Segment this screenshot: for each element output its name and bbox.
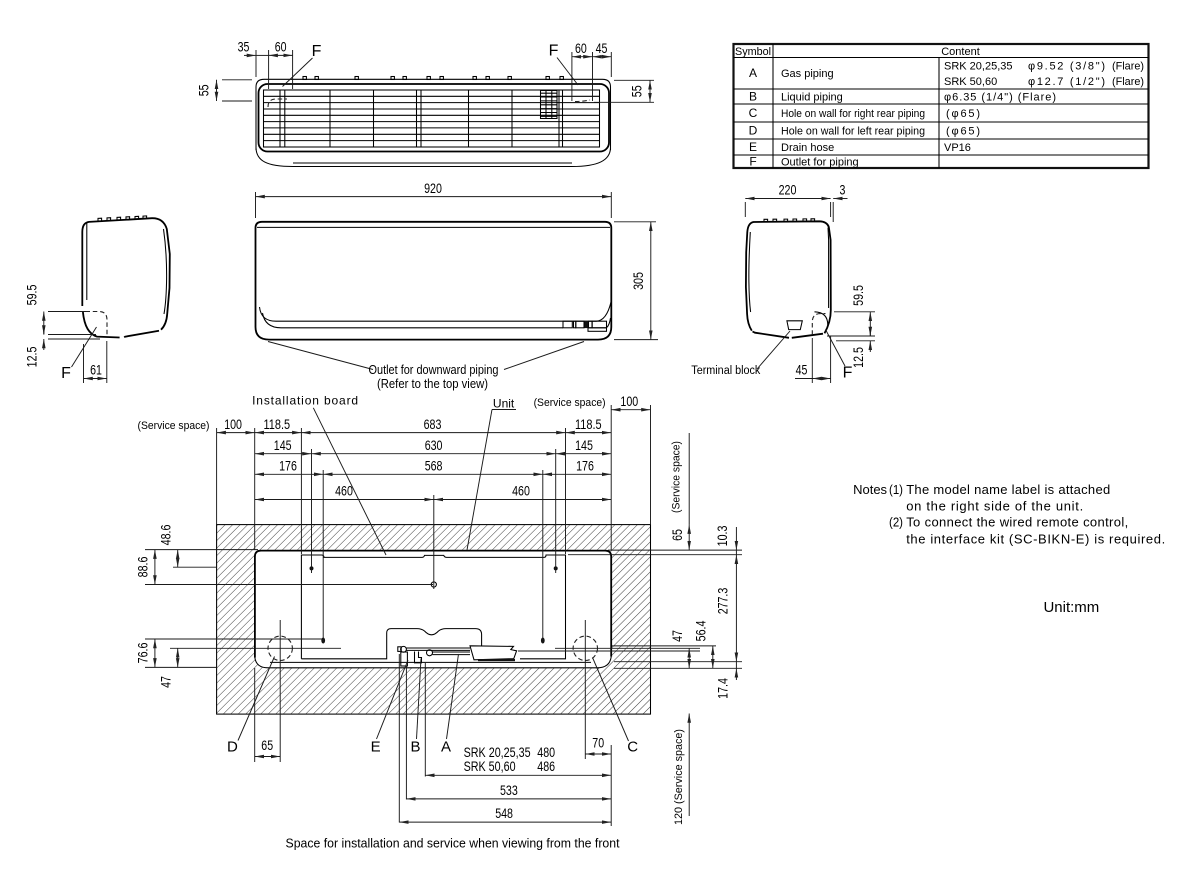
- svg-text:Notes: Notes: [853, 482, 887, 497]
- svg-text:145: 145: [274, 437, 292, 453]
- svg-text:Unit: Unit: [493, 396, 515, 410]
- svg-text:B: B: [410, 739, 420, 756]
- svg-text:56.4: 56.4: [693, 620, 709, 641]
- svg-text:3: 3: [840, 182, 846, 198]
- svg-text:Unit:mm: Unit:mm: [1043, 599, 1099, 616]
- svg-text:C: C: [627, 739, 638, 756]
- svg-text:55: 55: [196, 84, 212, 96]
- svg-text:55: 55: [629, 85, 645, 97]
- svg-text:F: F: [843, 365, 853, 382]
- svg-text:59.5: 59.5: [24, 284, 40, 305]
- svg-text:460: 460: [335, 483, 353, 499]
- svg-text:100: 100: [620, 393, 638, 409]
- svg-text:65: 65: [669, 529, 685, 541]
- svg-text:118.5: 118.5: [575, 416, 602, 432]
- svg-text:12.5: 12.5: [24, 346, 40, 367]
- svg-text:A: A: [441, 739, 451, 756]
- svg-text:65: 65: [261, 737, 273, 753]
- svg-text:45: 45: [796, 362, 808, 378]
- svg-text:Terminal block: Terminal block: [691, 365, 760, 377]
- svg-text:(Flare): (Flare): [1112, 61, 1144, 73]
- svg-text:(Service space): (Service space): [138, 420, 210, 432]
- svg-text:76.6: 76.6: [135, 642, 151, 663]
- svg-text:A: A: [749, 66, 757, 80]
- svg-text:F: F: [61, 365, 71, 382]
- svg-text:E: E: [749, 140, 757, 154]
- svg-text:Hole on wall for left rear pip: Hole on wall for left rear piping: [781, 125, 925, 137]
- svg-text:59.5: 59.5: [850, 285, 866, 306]
- svg-text:Hole on wall for right rear pi: Hole on wall for right rear piping: [781, 108, 925, 120]
- svg-text:E: E: [371, 739, 381, 756]
- svg-text:C: C: [749, 106, 758, 120]
- svg-text:120 (Service space): 120 (Service space): [673, 729, 685, 825]
- svg-text:48.6: 48.6: [157, 524, 173, 545]
- svg-text:683: 683: [424, 416, 442, 432]
- svg-text:φ9.52 (3/8"): φ9.52 (3/8"): [1028, 61, 1105, 73]
- svg-text:568: 568: [425, 458, 443, 474]
- svg-text:on the right side of the unit.: on the right side of the unit.: [906, 499, 1083, 514]
- svg-text:SRK 50,60: SRK 50,60: [464, 759, 516, 774]
- svg-text:Liquid piping: Liquid piping: [781, 91, 843, 103]
- svg-text:35: 35: [238, 39, 250, 55]
- svg-text:To connect the wired remote co: To connect the wired remote control,: [906, 515, 1128, 530]
- svg-text:The model name label is attach: The model name label is attached: [906, 482, 1110, 497]
- svg-text:Outlet for piping: Outlet for piping: [781, 156, 859, 168]
- svg-text:(Service space): (Service space): [534, 397, 606, 409]
- svg-text:Gas piping: Gas piping: [781, 68, 834, 80]
- svg-text:SRK 50,60: SRK 50,60: [944, 76, 997, 88]
- svg-text:F: F: [749, 154, 756, 168]
- svg-text:61: 61: [90, 362, 102, 378]
- svg-text:SRK 20,25,35: SRK 20,25,35: [464, 745, 531, 760]
- svg-text:47: 47: [157, 676, 173, 688]
- svg-text:10.3: 10.3: [714, 525, 730, 546]
- svg-text:Drain hose: Drain hose: [781, 142, 834, 154]
- svg-text:460: 460: [512, 483, 530, 499]
- svg-text:60: 60: [575, 40, 587, 56]
- svg-text:60: 60: [275, 39, 287, 55]
- svg-text:D: D: [749, 123, 758, 137]
- svg-text:305: 305: [630, 272, 646, 290]
- svg-text:486: 486: [537, 758, 555, 774]
- svg-text:the interface kit (SC-BIKN-E): the interface kit (SC-BIKN-E) is require…: [906, 532, 1165, 547]
- svg-text:Installation board: Installation board: [252, 394, 358, 408]
- svg-text:(2): (2): [889, 515, 903, 530]
- svg-text:47: 47: [669, 630, 685, 642]
- svg-text:17.4: 17.4: [715, 678, 731, 699]
- svg-text:100: 100: [224, 416, 242, 432]
- svg-text:176: 176: [576, 458, 594, 474]
- svg-text:118.5: 118.5: [264, 416, 291, 432]
- svg-text:533: 533: [500, 782, 518, 798]
- svg-text:920: 920: [424, 180, 442, 196]
- svg-text:(Service space): (Service space): [671, 441, 683, 513]
- svg-text:Outlet for downward piping: Outlet for downward piping: [369, 363, 499, 377]
- svg-text:88.6: 88.6: [135, 556, 151, 577]
- svg-text:F: F: [549, 43, 559, 60]
- svg-text:φ6.35 (1/4") (Flare): φ6.35 (1/4") (Flare): [944, 92, 1056, 104]
- svg-text:220: 220: [779, 182, 797, 198]
- svg-text:176: 176: [279, 458, 297, 474]
- svg-text:B: B: [749, 89, 757, 103]
- svg-text:D: D: [227, 739, 238, 756]
- svg-text:70: 70: [592, 735, 604, 751]
- svg-text:VP16: VP16: [944, 142, 971, 154]
- svg-text:548: 548: [495, 805, 513, 821]
- svg-text:Symbol: Symbol: [735, 46, 771, 58]
- svg-text:(1): (1): [889, 482, 903, 497]
- svg-text:F: F: [312, 43, 322, 60]
- svg-text:Content: Content: [941, 46, 980, 58]
- svg-text:Space for installation and ser: Space for installation and service when …: [286, 837, 621, 851]
- svg-text:45: 45: [596, 40, 608, 56]
- svg-text:(Refer to the top view): (Refer to the top view): [377, 377, 488, 391]
- svg-text:277.3: 277.3: [715, 588, 731, 615]
- svg-text:(Flare): (Flare): [1112, 76, 1144, 88]
- svg-text:145: 145: [575, 437, 593, 453]
- svg-text:SRK 20,25,35: SRK 20,25,35: [944, 61, 1013, 73]
- svg-text:12.5: 12.5: [850, 347, 866, 368]
- svg-text:φ12.7 (1/2"): φ12.7 (1/2"): [1028, 76, 1105, 88]
- svg-text:630: 630: [425, 437, 443, 453]
